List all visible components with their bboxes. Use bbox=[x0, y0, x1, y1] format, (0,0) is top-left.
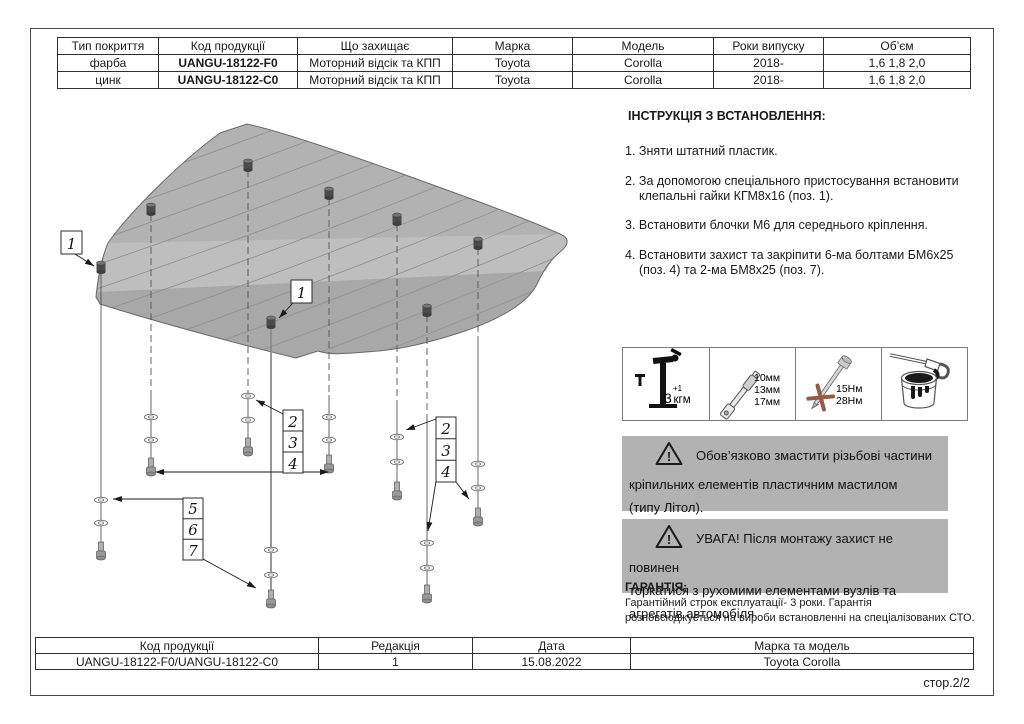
footer-table: Код продукції Редакція Дата Марка та мод… bbox=[35, 637, 974, 670]
col-header-brand-model: Марка та модель bbox=[631, 638, 974, 654]
bolt bbox=[244, 438, 253, 456]
warning-triangle-icon: ! bbox=[655, 524, 683, 556]
torque-value: 28Нм bbox=[836, 395, 862, 407]
washer bbox=[145, 414, 158, 420]
washer bbox=[391, 459, 404, 465]
callout-label: 3 bbox=[288, 434, 298, 452]
washer bbox=[242, 417, 255, 423]
washer bbox=[323, 414, 336, 420]
washer bbox=[95, 497, 108, 503]
col-header-revision: Редакція bbox=[319, 638, 473, 654]
callout-label: 1 bbox=[67, 235, 77, 253]
rivet-torque-sup: +1 bbox=[673, 384, 683, 393]
step-line: клепальні гайки КГМ8х16 (поз. 1). bbox=[625, 189, 993, 204]
cell-date: 15.08.2022 bbox=[473, 654, 631, 670]
bolt bbox=[393, 482, 402, 500]
wrench-size: 10мм bbox=[754, 372, 780, 384]
bolt bbox=[147, 458, 156, 476]
washer bbox=[323, 437, 336, 443]
warranty-line: розповсюджується на вироби встановленні … bbox=[625, 612, 985, 624]
rivet-nut bbox=[325, 187, 334, 200]
wrench-size: 17мм bbox=[754, 396, 780, 408]
mounting-bolt-icon: 15Нм 28Нм bbox=[796, 348, 876, 420]
product-table: Тип покриття Код продукції Що захищає Ма… bbox=[57, 37, 971, 89]
tool-box-bolt: 15Нм 28Нм bbox=[795, 347, 882, 421]
callout-label: 3 bbox=[441, 442, 451, 460]
svg-text:!: ! bbox=[667, 449, 671, 464]
footer-value-row: UANGU-18122-F0/UANGU-18122-C0 1 15.08.20… bbox=[36, 654, 974, 670]
cell-brand-model: Toyota Corolla bbox=[631, 654, 974, 670]
wrench-size: 13мм bbox=[754, 384, 780, 396]
installation-diagram: 1 1 2 3 4 2 3 4 5 6 7 bbox=[40, 100, 610, 630]
rivet-nut bbox=[97, 261, 106, 274]
cell-coating: цинк bbox=[58, 72, 159, 89]
table-row: цинк UANGU-18122-C0 Моторний відсік та К… bbox=[58, 72, 971, 89]
col-header-code: Код продукції bbox=[159, 38, 298, 55]
warranty-line: Гарантійний строк експлуатації- 3 роки. … bbox=[625, 597, 985, 609]
callout-label: 6 bbox=[188, 521, 198, 539]
instruction-step-3: 3. Встановити блочки М6 для середнього к… bbox=[625, 218, 993, 233]
callout-label: 2 bbox=[440, 420, 451, 438]
cell-years: 2018- bbox=[714, 55, 824, 72]
rivet-torque-unit: кгм bbox=[674, 394, 691, 406]
col-header-model: Модель bbox=[573, 38, 714, 55]
footer-header-row: Код продукції Редакція Дата Марка та мод… bbox=[36, 638, 974, 654]
product-table-header-row: Тип покриття Код продукції Що захищає Ма… bbox=[58, 38, 971, 55]
cell-brand: Toyota bbox=[453, 55, 573, 72]
washer bbox=[145, 437, 158, 443]
callout-label: 2 bbox=[287, 413, 298, 431]
bolt bbox=[474, 508, 483, 526]
cell-revision: 1 bbox=[319, 654, 473, 670]
rivet-nut bbox=[474, 237, 483, 250]
cell-model: Corolla bbox=[573, 55, 714, 72]
washer bbox=[421, 565, 434, 571]
warning-text: Обов’язково змастити різьбові частини bbox=[696, 448, 932, 463]
tool-box-grease bbox=[881, 347, 968, 421]
instruction-step-4: 4. Встановити захист та закріпити 6-ма б… bbox=[625, 248, 993, 278]
step-line: 1. Зняти штатний пластик. bbox=[625, 144, 993, 159]
col-header-volume: Об’єм bbox=[824, 38, 971, 55]
rivet-nut-tool-icon: 3 +1 кгм bbox=[623, 348, 709, 420]
callout-label: 7 bbox=[188, 542, 198, 560]
cell-coating: фарба bbox=[58, 55, 159, 72]
instruction-step-2: 2. За допомогою спеціального пристосуван… bbox=[625, 174, 993, 204]
tools-row: 3 +1 кгм 10мм 13мм 17мм bbox=[622, 347, 968, 421]
instructions-title: ІНСТРУКЦІЯ З ВСТАНОВЛЕННЯ: bbox=[628, 109, 826, 123]
callout-label: 4 bbox=[440, 463, 451, 481]
warranty-title: ГАРАНТІЯ: bbox=[625, 580, 687, 594]
callout-label: 5 bbox=[188, 500, 198, 518]
step-line: 3. Встановити блочки М6 для середнього к… bbox=[625, 218, 993, 233]
washer bbox=[472, 485, 485, 491]
torque-wrench-icon: 10мм 13мм 17мм bbox=[710, 348, 795, 420]
cell-code: UANGU-18122-C0 bbox=[159, 72, 298, 89]
washer bbox=[95, 520, 108, 526]
step-line: 4. Встановити захист та закріпити 6-ма б… bbox=[625, 248, 993, 263]
cell-years: 2018- bbox=[714, 72, 824, 89]
cell-model: Corolla bbox=[573, 72, 714, 89]
warning-line: !Обов’язково змастити різьбові частини bbox=[629, 441, 940, 473]
col-header-brand: Марка bbox=[453, 38, 573, 55]
tool-box-wrench: 10мм 13мм 17мм bbox=[709, 347, 796, 421]
svg-text:!: ! bbox=[667, 532, 671, 547]
bolt bbox=[423, 585, 432, 603]
warning-text: (типу Літол). bbox=[629, 496, 940, 519]
washer bbox=[391, 434, 404, 440]
bolt bbox=[97, 542, 106, 560]
rivet-nut bbox=[267, 316, 276, 329]
torque-value: 15Нм bbox=[836, 383, 862, 395]
washer bbox=[265, 572, 278, 578]
washer bbox=[242, 393, 255, 399]
grease-bucket-icon bbox=[882, 348, 966, 420]
warning-text: кріпильних елементів пластичним мастилом bbox=[629, 473, 940, 496]
warning-box-grease: !Обов’язково змастити різьбові частини к… bbox=[622, 436, 948, 511]
washer bbox=[265, 547, 278, 553]
cell-volume: 1,6 1,8 2,0 bbox=[824, 72, 971, 89]
warning-triangle-icon: ! bbox=[655, 441, 683, 473]
step-line: (поз. 4) та 2-ма БМ8х25 (поз. 7). bbox=[625, 263, 993, 278]
tool-box-rivet: 3 +1 кгм bbox=[622, 347, 710, 421]
dimension-arrow-left bbox=[155, 469, 164, 475]
rivet-nut bbox=[147, 203, 156, 216]
col-header-coating: Тип покриття bbox=[58, 38, 159, 55]
washer bbox=[472, 461, 485, 467]
cell-protects: Моторний відсік та КПП bbox=[298, 55, 453, 72]
rivet-torque-value: 3 bbox=[664, 390, 672, 406]
page-number: стор.2/2 bbox=[923, 676, 970, 690]
cell-code: UANGU-18122-F0 bbox=[159, 55, 298, 72]
cell-protects: Моторний відсік та КПП bbox=[298, 72, 453, 89]
instruction-step-1: 1. Зняти штатний пластик. bbox=[625, 144, 993, 159]
cell-brand: Toyota bbox=[453, 72, 573, 89]
bolt bbox=[325, 455, 334, 473]
col-header-years: Роки випуску bbox=[714, 38, 824, 55]
washer bbox=[421, 540, 434, 546]
rivet-nut bbox=[423, 304, 432, 317]
bolt bbox=[267, 590, 276, 608]
cell-code: UANGU-18122-F0/UANGU-18122-C0 bbox=[36, 654, 319, 670]
warning-line: !УВАГА! Після монтажу захист не повинен bbox=[629, 524, 940, 579]
callout-label: 1 bbox=[297, 284, 307, 302]
col-header-date: Дата bbox=[473, 638, 631, 654]
cell-volume: 1,6 1,8 2,0 bbox=[824, 55, 971, 72]
rivet-nut bbox=[393, 213, 402, 226]
step-line: 2. За допомогою спеціального пристосуван… bbox=[625, 174, 993, 189]
table-row: фарба UANGU-18122-F0 Моторний відсік та … bbox=[58, 55, 971, 72]
rivet-nut bbox=[244, 159, 253, 172]
col-header-protects: Що захищає bbox=[298, 38, 453, 55]
col-header-code: Код продукції bbox=[36, 638, 319, 654]
callout-label: 4 bbox=[287, 455, 298, 473]
